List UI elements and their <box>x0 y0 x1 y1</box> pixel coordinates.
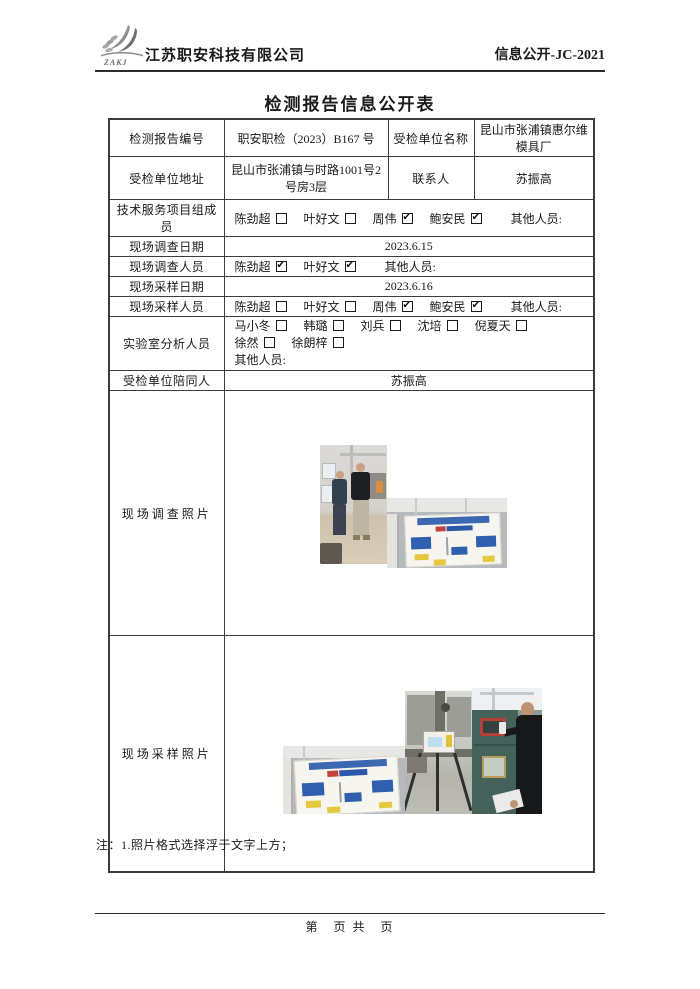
board-card <box>301 782 324 796</box>
member-name: 徐朗梓 <box>292 336 328 350</box>
person-legs <box>333 505 346 535</box>
board-title-bar <box>446 525 472 531</box>
person-torso <box>351 472 370 500</box>
checkbox-icon[interactable] <box>345 301 356 312</box>
board-card <box>451 547 467 556</box>
board-card <box>371 780 393 793</box>
ceiling-beam <box>350 445 353 475</box>
survey-date-label: 现场调查日期 <box>109 237 224 257</box>
checkbox-icon[interactable] <box>276 320 287 331</box>
person-hand <box>510 800 518 808</box>
member-item: 鲍安民 <box>430 300 482 314</box>
person-head <box>521 702 534 716</box>
company-name: 江苏职安科技有限公司 <box>145 44 305 65</box>
person-legs <box>353 500 369 536</box>
board-yellow-card <box>414 554 428 560</box>
unit-name-value: 昆山市张浦镇惠尔维模具厂 <box>474 119 594 157</box>
member-item: 周伟 <box>373 300 413 314</box>
table-row: 现场调查照片 <box>109 391 594 636</box>
board-yellow-card <box>433 559 445 565</box>
device-label <box>446 735 452 747</box>
sampling-date-label: 现场采样日期 <box>109 277 224 297</box>
survey-photo-workshop-people <box>320 445 387 564</box>
survey-staff-members-cell: 陈劲超 叶好文 其他人员: <box>224 257 594 277</box>
floor-clutter <box>320 543 342 564</box>
board-yellow-card <box>482 556 494 562</box>
shoe <box>353 535 360 540</box>
ceiling-beam <box>340 453 386 456</box>
footnote: 注：1.照片格式选择浮于文字上方； <box>96 836 294 853</box>
member-item: 沈培 <box>418 319 458 333</box>
member-name: 韩璐 <box>304 319 328 333</box>
lab-others-line: 其他人员: <box>235 352 590 369</box>
board-title-bar <box>339 769 367 776</box>
board-yellow-card <box>305 800 320 808</box>
sampling-photo-tripod-device <box>405 691 472 814</box>
person-torso <box>332 479 347 505</box>
document-code: 信息公开-JC-2021 <box>495 44 605 64</box>
companion-value: 苏振高 <box>224 371 594 391</box>
checkbox-icon[interactable] <box>333 320 344 331</box>
member-item: 韩璐 <box>304 319 344 333</box>
table-row: 现场调查人员 陈劲超 叶好文 其他人员: <box>109 257 594 277</box>
member-name: 陈劲超 <box>235 260 271 274</box>
board-yellow-card <box>378 802 391 809</box>
handheld-meter <box>499 722 506 734</box>
others-label: 其他人员: <box>511 300 562 314</box>
orange-object <box>376 481 383 493</box>
table-row: 受检单位陪同人 苏振高 <box>109 371 594 391</box>
lab-members-line: 马小冬 韩璐 刘兵 沈培 倪夏天 徐然 徐朗梓 <box>235 318 590 352</box>
survey-date-value: 2023.6.15 <box>224 237 594 257</box>
member-name: 鲍安民 <box>430 212 466 226</box>
board-yellow-card <box>327 806 340 813</box>
unit-address-value: 昆山市张浦镇与时路1001号2号房3层 <box>224 157 388 200</box>
sampling-date-value: 2023.6.16 <box>224 277 594 297</box>
companion-label: 受检单位陪同人 <box>109 371 224 391</box>
header-divider-line <box>95 70 605 72</box>
checkbox-icon[interactable] <box>471 301 482 312</box>
ceiling-beam <box>480 692 534 695</box>
sampling-photo-notice-board <box>283 746 405 814</box>
board-flow-line <box>338 782 341 802</box>
person-head <box>356 463 365 472</box>
device-screen <box>428 737 442 747</box>
unit-address-label: 受检单位地址 <box>109 157 224 200</box>
lab-staff-members-cell: 马小冬 韩璐 刘兵 沈培 倪夏天 徐然 徐朗梓 其他人员: <box>224 317 594 371</box>
page-number-text: 第 页 共 页 <box>0 918 700 935</box>
member-name: 徐然 <box>235 336 259 350</box>
checkbox-icon[interactable] <box>333 337 344 348</box>
disclosure-table: 检测报告编号 职安职检（2023）B167 号 受检单位名称 昆山市张浦镇惠尔维… <box>108 118 595 873</box>
checkbox-icon[interactable] <box>276 261 287 272</box>
footer-divider-line <box>95 913 605 914</box>
member-item: 马小冬 <box>235 319 287 333</box>
wall-seam <box>415 498 417 514</box>
member-name: 马小冬 <box>235 319 271 333</box>
document-page: ZAKJ 江苏职安科技有限公司 信息公开-JC-2021 检测报告信息公开表 检… <box>0 0 700 989</box>
checkbox-icon[interactable] <box>345 213 356 224</box>
report-number-value: 职安职检（2023）B167 号 <box>224 119 388 157</box>
member-item: 徐朗梓 <box>292 336 344 350</box>
report-number-label: 检测报告编号 <box>109 119 224 157</box>
member-item: 徐然 <box>235 336 275 350</box>
person-head <box>336 471 344 479</box>
machine-seam <box>474 744 516 746</box>
shoe <box>363 535 370 540</box>
checkbox-icon[interactable] <box>390 320 401 331</box>
adjacent-panel <box>283 758 293 814</box>
member-name: 周伟 <box>373 212 397 226</box>
survey-photo-notice-board <box>387 498 507 568</box>
member-name: 沈培 <box>418 319 442 333</box>
member-name: 陈劲超 <box>235 212 271 226</box>
others-label: 其他人员: <box>235 353 286 367</box>
board-card <box>475 536 495 548</box>
checkbox-icon[interactable] <box>402 213 413 224</box>
checkbox-icon[interactable] <box>345 261 356 272</box>
board-banner <box>308 759 386 770</box>
member-name: 刘兵 <box>361 319 385 333</box>
board-flow-line <box>445 537 448 555</box>
board-card <box>410 537 430 550</box>
checkbox-icon[interactable] <box>276 301 287 312</box>
survey-staff-label: 现场调查人员 <box>109 257 224 277</box>
checkbox-icon[interactable] <box>447 320 458 331</box>
tech-team-members-cell: 陈劲超 叶好文 周伟 鲍安民 其他人员: <box>224 200 594 237</box>
sampling-device <box>423 731 455 753</box>
checkbox-icon[interactable] <box>276 213 287 224</box>
member-item: 叶好文 <box>304 212 356 226</box>
checkbox-icon[interactable] <box>471 213 482 224</box>
table-row: 受检单位地址 昆山市张浦镇与时路1001号2号房3层 联系人 苏振高 <box>109 157 594 200</box>
survey-photo-cell <box>224 391 594 636</box>
logo-zakj-text: ZAKJ <box>104 58 128 67</box>
tripod-leg <box>436 753 439 811</box>
table-row: 实验室分析人员 马小冬 韩璐 刘兵 沈培 倪夏天 徐然 徐朗梓 其他人员: <box>109 317 594 371</box>
wall-top-strip <box>387 498 507 512</box>
contact-label: 联系人 <box>388 157 474 200</box>
member-item: 陈劲超 <box>235 260 287 274</box>
board-banner <box>417 516 489 526</box>
member-name: 倪夏天 <box>475 319 511 333</box>
member-item: 陈劲超 <box>235 300 287 314</box>
table-row: 现场采样人员 陈劲超 叶好文 周伟 鲍安民 其他人员: <box>109 297 594 317</box>
floor-clutter <box>407 757 427 773</box>
board-card <box>344 792 361 802</box>
unit-name-label: 受检单位名称 <box>388 119 474 157</box>
contact-value: 苏振高 <box>474 157 594 200</box>
page-title: 检测报告信息公开表 <box>0 90 700 115</box>
window <box>322 463 336 479</box>
hose-reel <box>441 703 450 712</box>
table-row: 现场采样日期 2023.6.16 <box>109 277 594 297</box>
window <box>321 485 333 503</box>
member-item: 叶好文 <box>304 300 356 314</box>
member-item: 刘兵 <box>361 319 401 333</box>
board-title-red <box>327 770 338 777</box>
member-item: 叶好文 <box>304 260 356 274</box>
sampling-staff-label: 现场采样人员 <box>109 297 224 317</box>
member-item: 陈劲超 <box>235 212 287 226</box>
member-item: 倪夏天 <box>475 319 527 333</box>
adjacent-panel <box>387 514 399 568</box>
table-row: 技术服务项目组成员 陈劲超 叶好文 周伟 鲍安民 其他人员: <box>109 200 594 237</box>
sampling-staff-members-cell: 陈劲超 叶好文 周伟 鲍安民 其他人员: <box>224 297 594 317</box>
checkbox-icon[interactable] <box>402 301 413 312</box>
member-name: 叶好文 <box>304 212 340 226</box>
board-title-red <box>435 526 445 531</box>
member-name: 鲍安民 <box>430 300 466 314</box>
notice-board <box>293 755 400 814</box>
sampling-photo-machine-person <box>472 688 542 814</box>
member-name: 周伟 <box>373 300 397 314</box>
member-item: 鲍安民 <box>430 212 482 226</box>
lab-staff-label: 实验室分析人员 <box>109 317 224 371</box>
company-logo: ZAKJ <box>97 24 149 70</box>
checkbox-icon[interactable] <box>516 320 527 331</box>
member-name: 叶好文 <box>304 300 340 314</box>
survey-photo-label: 现场调查照片 <box>109 391 224 636</box>
ceiling-beam <box>492 688 495 710</box>
table-row: 现场调查日期 2023.6.15 <box>109 237 594 257</box>
tech-team-label: 技术服务项目组成员 <box>109 200 224 237</box>
member-name: 陈劲超 <box>235 300 271 314</box>
page-header: ZAKJ 江苏职安科技有限公司 信息公开-JC-2021 <box>95 24 605 72</box>
wall-seam <box>465 498 467 512</box>
checkbox-icon[interactable] <box>264 337 275 348</box>
others-label: 其他人员: <box>511 212 562 226</box>
tripod-leg <box>453 753 472 812</box>
notice-board <box>404 512 502 567</box>
member-item: 周伟 <box>373 212 413 226</box>
others-label: 其他人员: <box>385 260 436 274</box>
member-name: 叶好文 <box>304 260 340 274</box>
machine-lower-window <box>482 756 506 778</box>
table-row: 检测报告编号 职安职检（2023）B167 号 受检单位名称 昆山市张浦镇惠尔维… <box>109 119 594 157</box>
